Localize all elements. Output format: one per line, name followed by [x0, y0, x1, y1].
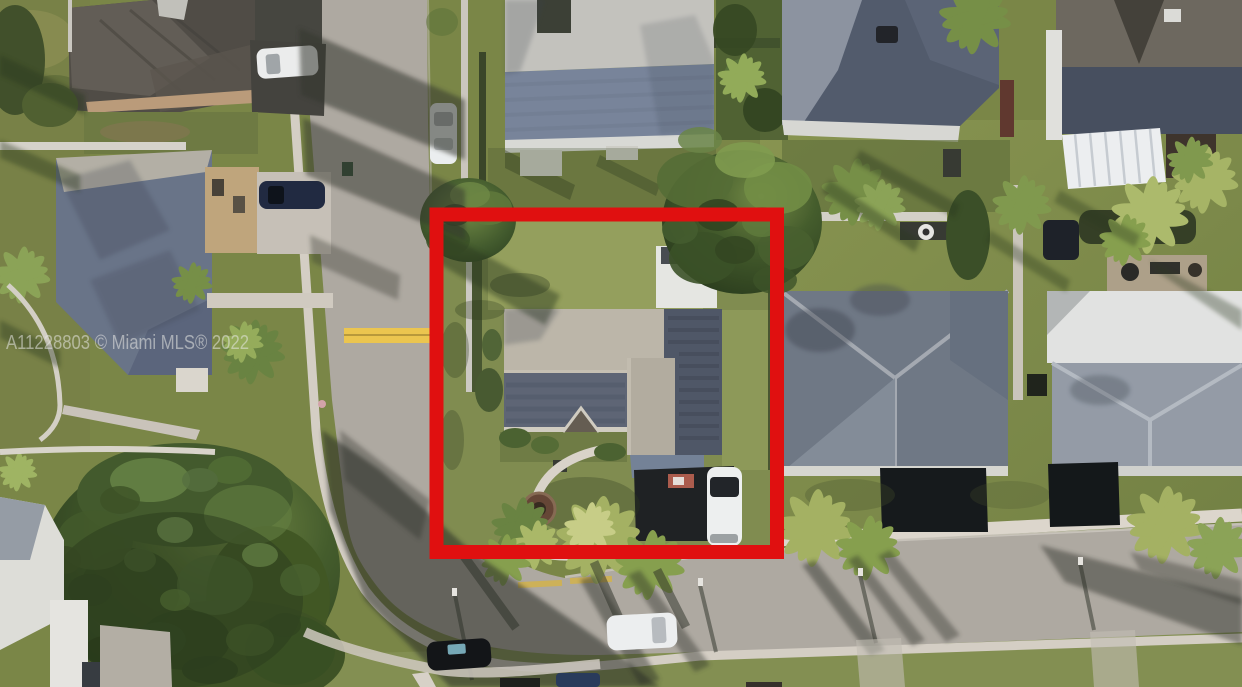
svg-text:A11228803 © Miami MLS® 2022: A11228803 © Miami MLS® 2022	[6, 332, 249, 354]
